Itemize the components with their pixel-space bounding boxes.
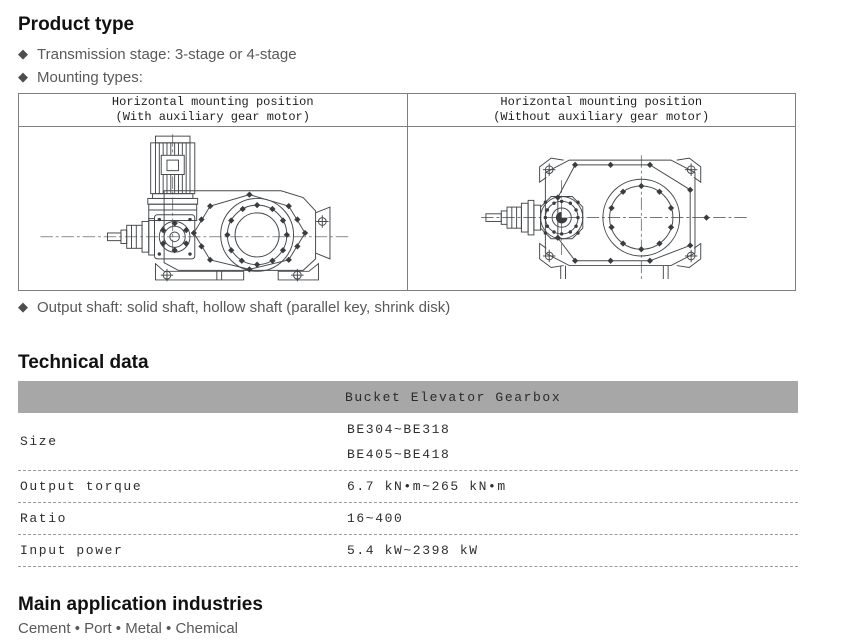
row-label: Output torque: [18, 479, 347, 494]
row-label: Size: [18, 434, 347, 449]
diamond-icon: ◆: [18, 42, 28, 65]
mounting-table-header-row: Horizontal mounting position (With auxil…: [19, 94, 796, 127]
mounting-header-line1: Horizontal mounting position: [19, 95, 407, 110]
row-value: 16~400: [347, 503, 403, 534]
diamond-icon: ◆: [18, 295, 28, 318]
bullet-text: Output shaft: solid shaft, hollow shaft …: [37, 296, 450, 319]
mounting-header-line1: Horizontal mounting position: [408, 95, 796, 110]
technical-data-header: Bucket Elevator Gearbox: [18, 381, 798, 413]
gearbox-without-motor-drawing: [414, 128, 788, 290]
bullet-text: Transmission stage: 3-stage or 4-stage: [37, 43, 297, 66]
product-type-heading: Product type: [18, 14, 826, 36]
row-value: 5.4 kW~2398 kW: [347, 535, 479, 566]
technical-data-column-header: Bucket Elevator Gearbox: [345, 390, 561, 405]
drawing-cell-with-motor: [19, 127, 408, 291]
row-value: 6.7 kN•m~265 kN•m: [347, 471, 507, 502]
gearbox-with-motor-drawing: [27, 128, 399, 290]
mounting-header-line2: (Without auxiliary gear motor): [408, 110, 796, 125]
table-row-ratio: Ratio 16~400: [18, 503, 798, 535]
bullet-mounting-types: ◆ Mounting types:: [18, 66, 826, 89]
bullet-transmission-stage: ◆ Transmission stage: 3-stage or 4-stage: [18, 43, 826, 66]
diamond-icon: ◆: [18, 65, 28, 88]
table-row-input-power: Input power 5.4 kW~2398 kW: [18, 535, 798, 567]
row-value: BE304~BE318 BE405~BE418: [347, 417, 450, 467]
table-row-size: Size BE304~BE318 BE405~BE418: [18, 413, 798, 471]
mounting-table-drawing-row: [19, 127, 796, 291]
technical-data-table: Bucket Elevator Gearbox Size BE304~BE318…: [18, 381, 798, 567]
table-row-output-torque: Output torque 6.7 kN•m~265 kN•m: [18, 471, 798, 503]
applications-heading: Main application industries: [18, 594, 826, 616]
technical-data-heading: Technical data: [18, 352, 826, 374]
row-label: Ratio: [18, 511, 347, 526]
mounting-header-line2: (With auxiliary gear motor): [19, 110, 407, 125]
bullet-text: Mounting types:: [37, 66, 143, 89]
mounting-header-with-motor: Horizontal mounting position (With auxil…: [19, 94, 408, 127]
row-label: Input power: [18, 543, 347, 558]
industries-line: Cement • Port • Metal • Chemical: [18, 618, 826, 640]
bullet-output-shaft: ◆ Output shaft: solid shaft, hollow shaf…: [18, 296, 826, 319]
drawing-cell-without-motor: [407, 127, 796, 291]
catalog-page: Product type ◆ Transmission stage: 3-sta…: [0, 0, 844, 640]
mounting-table: Horizontal mounting position (With auxil…: [18, 93, 796, 291]
mounting-header-without-motor: Horizontal mounting position (Without au…: [407, 94, 796, 127]
